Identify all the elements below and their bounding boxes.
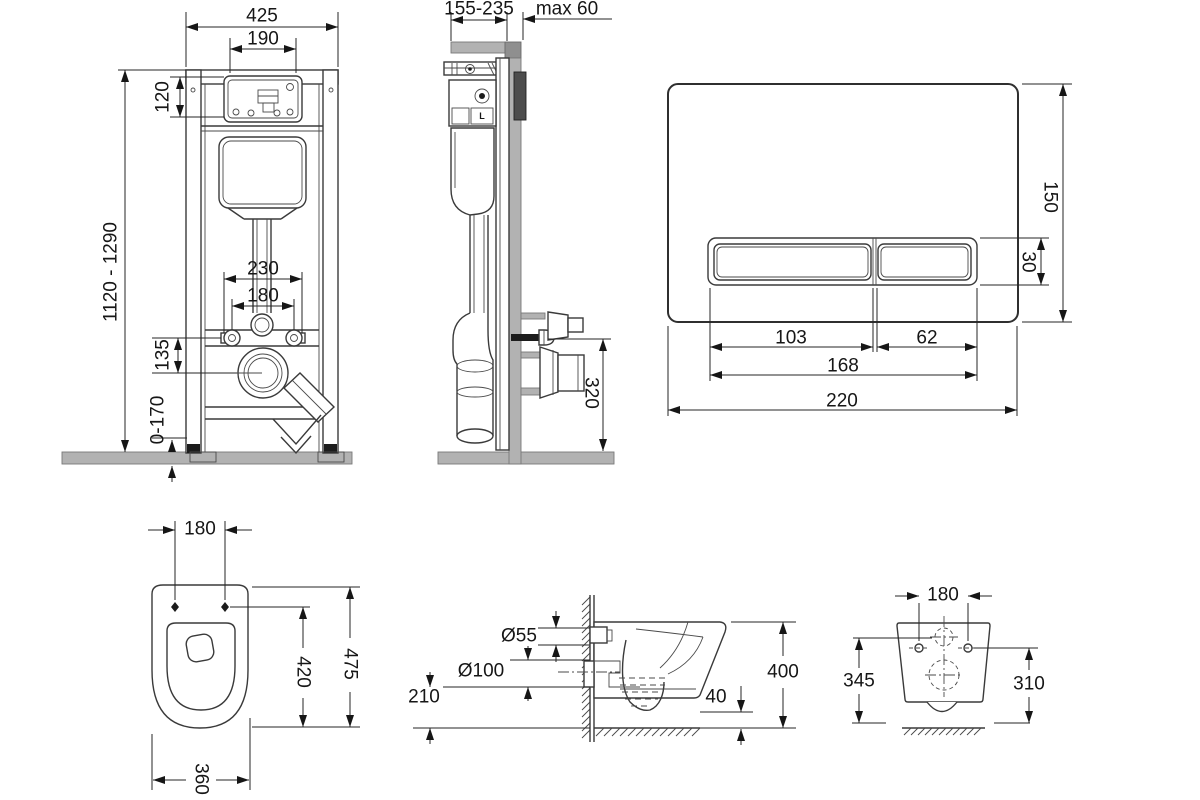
flush-plate (668, 84, 1018, 322)
dim-opening-height: 120 (153, 81, 174, 113)
dim-buttons-width: 168 (827, 356, 859, 377)
dim-large-button-width: 103 (775, 328, 807, 349)
dim-fixing-spacing: 180 (927, 585, 959, 606)
dim-fixing-width-inner: 180 (247, 286, 279, 307)
mechanism-label: L (479, 111, 485, 121)
dim-rim-height: 400 (767, 662, 799, 683)
technical-drawing: 425 190 120 1120 - 1290 230 180 135 (0, 0, 1200, 800)
dim-inlet-height: 345 (843, 671, 875, 692)
dim-inner-depth: 420 (293, 656, 314, 688)
dim-rim-drop: 40 (705, 687, 726, 708)
dim-outlet-diameter: Ø100 (458, 661, 504, 682)
dim-fixing-height: 310 (1013, 674, 1045, 695)
inlet-fitting (548, 312, 568, 340)
dim-total-width: 425 (246, 6, 278, 27)
dim-fixing-width-outer: 230 (247, 259, 279, 280)
dim-total-depth: 475 (340, 648, 361, 680)
installation-drawing-sheet: 425 190 120 1120 - 1290 230 180 135 (0, 0, 1200, 800)
dim-outlet-height: 320 (581, 377, 602, 409)
dim-outlet-axis-height: 210 (408, 687, 440, 708)
dim-foot-adjust: 0-170 (148, 396, 169, 445)
dim-depth-range: 155-235 (444, 0, 514, 20)
dim-plate-width: 220 (826, 391, 858, 412)
wall-top-bar (451, 42, 505, 53)
dim-bowl-width: 360 (191, 763, 212, 795)
flush-plate-section (514, 72, 526, 120)
outlet-fitting (540, 347, 558, 398)
service-opening (224, 76, 302, 122)
dim-frame-height: 1120 - 1290 (101, 222, 122, 322)
dim-button-height: 30 (1018, 251, 1039, 272)
mounting-rod (511, 334, 539, 341)
dim-inlet-diameter: Ø55 (501, 626, 537, 647)
inlet-pipe (590, 627, 607, 643)
dim-opening-width: 190 (247, 29, 279, 50)
dim-plate-height: 150 (1040, 181, 1061, 213)
small-flush-button (878, 244, 971, 280)
outlet-pipe (584, 661, 594, 687)
wall-top-block (505, 42, 521, 58)
dim-small-button-width: 62 (916, 328, 937, 349)
dim-wall-max: max 60 (536, 0, 598, 20)
large-flush-button (714, 244, 871, 280)
floor-strip (438, 452, 614, 464)
dim-fixing-spacing: 180 (184, 519, 216, 540)
dim-outlet-drop: 135 (153, 339, 174, 371)
